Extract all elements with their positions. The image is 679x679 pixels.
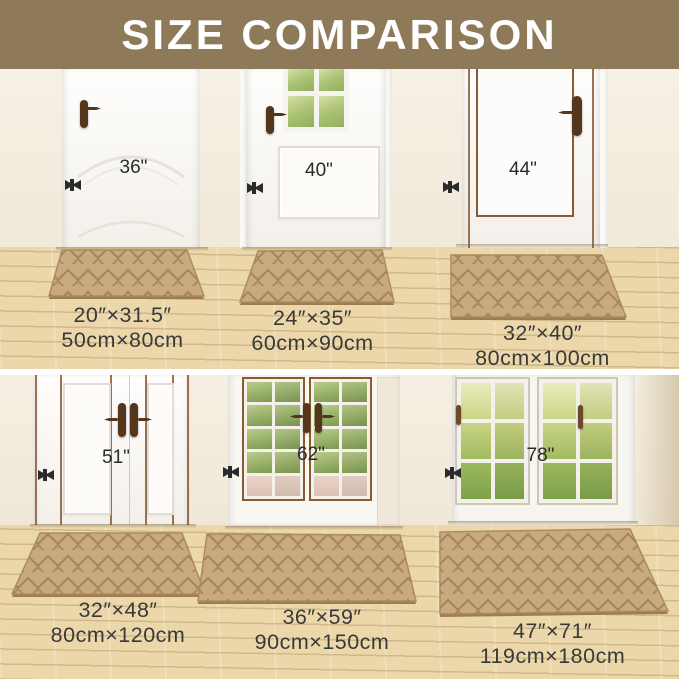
mat-size-cm: 50cm×80cm — [35, 328, 210, 353]
doormat-24x35 — [240, 250, 394, 305]
mat-size-label: 24″×35″ 60cm×90cm — [225, 306, 400, 356]
doormat-32x48 — [12, 533, 205, 597]
dimension-arrow-44: 44" — [450, 159, 596, 181]
mat-size-label: 20″×31.5″ 50cm×80cm — [35, 303, 210, 353]
mat-size-label: 32″×40″ 80cm×100cm — [455, 321, 630, 371]
mat-size-cm: 119cm×180cm — [455, 644, 650, 669]
mat-size-inches: 32″×40″ — [455, 321, 630, 346]
doormat-47x71 — [440, 529, 668, 617]
dimension-arrow-36: 36" — [72, 157, 195, 179]
door-width-label: 62" — [230, 444, 392, 466]
door-width-label: 40" — [254, 160, 384, 182]
mat-size-inches: 20″×31.5″ — [35, 303, 210, 328]
door-width-label: 51" — [45, 447, 187, 469]
doormat-20x31 — [49, 250, 204, 299]
mat-size-cm: 80cm×120cm — [28, 623, 208, 648]
mat-size-inches: 32″×48″ — [28, 598, 208, 623]
mat-size-inches: 24″×35″ — [225, 306, 400, 331]
dimension-arrow-40: 40" — [254, 160, 384, 182]
mat-size-inches: 36″×59″ — [232, 605, 412, 630]
dimension-arrow-51: 51" — [45, 447, 187, 469]
doormat-36x59 — [198, 534, 416, 604]
mat-size-inches: 47″×71″ — [455, 619, 650, 644]
mat-size-label: 47″×71″ 119cm×180cm — [455, 619, 650, 669]
door-width-label: 36" — [72, 157, 195, 179]
mat-size-label: 32″×48″ 80cm×120cm — [28, 598, 208, 648]
size-comparison-infographic: SIZE COMPARISON — [0, 0, 679, 679]
mat-size-cm: 80cm×100cm — [455, 346, 630, 371]
door-width-label: 78" — [452, 445, 629, 467]
door-width-label: 44" — [450, 159, 596, 181]
dimension-arrow-78: 78" — [452, 445, 629, 467]
mat-size-cm: 60cm×90cm — [225, 331, 400, 356]
mat-size-label: 36″×59″ 90cm×150cm — [232, 605, 412, 655]
mat-size-cm: 90cm×150cm — [232, 630, 412, 655]
doormat-32x40 — [451, 255, 626, 320]
dimension-arrow-62: 62" — [230, 444, 392, 466]
